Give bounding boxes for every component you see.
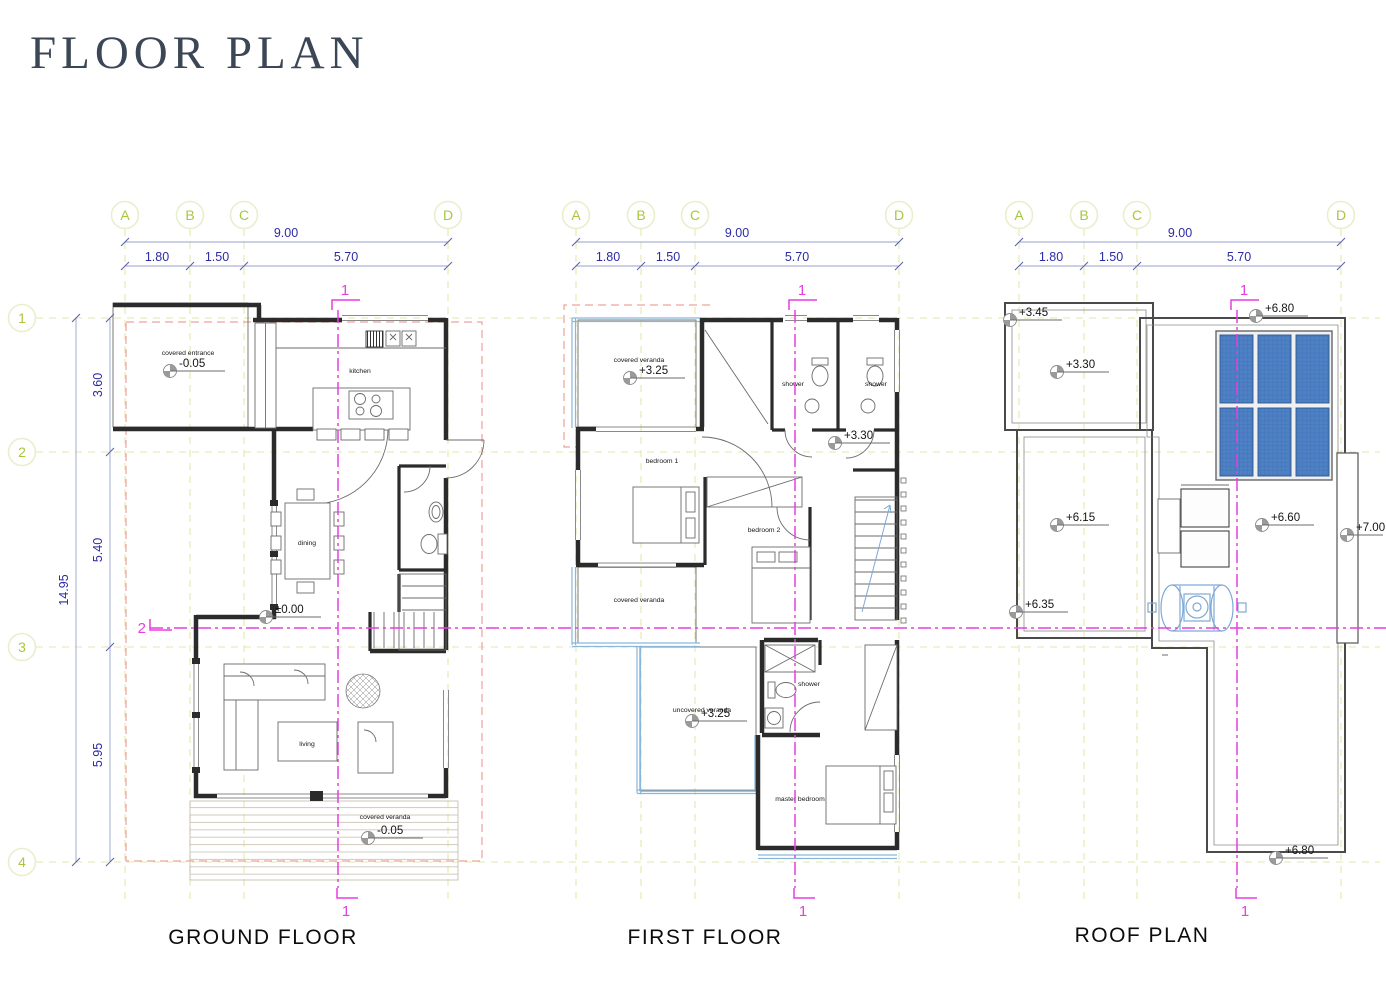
bubble-col-c-roof: C	[1132, 207, 1142, 223]
bubble-col-c-ground: C	[239, 207, 249, 223]
floor-plan-drawing: covered entrance kitchen dining living c…	[0, 0, 1386, 986]
bubble-col-d-first: D	[894, 207, 904, 223]
label-living: living	[299, 741, 315, 748]
level-635: +6.35	[1025, 599, 1054, 611]
dim-seg: 5.95	[91, 743, 105, 767]
bubble-col-a-first: A	[571, 207, 581, 223]
level-680-top: +6.80	[1265, 303, 1294, 315]
first-level-markers: +3.25 +3.30 +3.25	[624, 365, 891, 728]
first-windows	[576, 316, 900, 833]
level-ground-veranda: -0.05	[377, 825, 403, 837]
label-shower-left: shower	[782, 381, 805, 388]
ground-living-furniture	[224, 664, 393, 773]
solar-water-heater	[1148, 585, 1246, 631]
solar-panel-array	[1216, 331, 1332, 480]
level-hall: +3.30	[844, 430, 873, 442]
title-roof-plan: ROOF PLAN	[1075, 924, 1210, 947]
ground-kitchen-fixtures	[255, 323, 446, 440]
bubble-col-a-ground: A	[120, 207, 130, 223]
section-1-bottom-first: 1	[799, 903, 807, 920]
bubble-col-c-first: C	[690, 207, 700, 223]
first-labels: covered veranda shower shower bedroom 1 …	[614, 357, 888, 803]
page-title: FLOOR PLAN	[30, 27, 369, 79]
section-1-top-ground: 1	[341, 282, 349, 299]
dim-seg: 1.80	[596, 250, 620, 264]
section-1-bottom-ground: 1	[342, 903, 350, 920]
dim-seg: 3.60	[91, 373, 105, 397]
bubble-col-b-first: B	[636, 207, 645, 223]
dim-seg: 5.40	[91, 538, 105, 562]
bubble-col-b-roof: B	[1079, 207, 1088, 223]
dim-seg: 5.70	[334, 250, 358, 264]
label-kitchen: kitchen	[349, 368, 371, 375]
first-veranda-top-tiles	[578, 320, 696, 427]
title-ground-floor: GROUND FLOOR	[168, 926, 358, 949]
label-shower-bottom: shower	[798, 681, 821, 688]
ground-wc-fixtures	[421, 502, 447, 554]
dim-total-roof: 9.00	[1168, 226, 1192, 240]
dim-side-total: 14.95	[57, 574, 71, 605]
dim-seg: 5.70	[1227, 250, 1251, 264]
dim-seg: 1.50	[1099, 250, 1123, 264]
title-first-floor: FIRST FLOOR	[628, 926, 783, 949]
label-master-bedroom: master bedroom	[775, 796, 825, 803]
ground-veranda-decking	[190, 801, 458, 880]
roof-parapet-detail	[1337, 453, 1358, 643]
level-veranda-top: +3.25	[639, 365, 668, 377]
label-bedroom2: bedroom 2	[748, 527, 781, 534]
section-1-bottom-roof: 1	[1241, 903, 1249, 920]
label-shower-right: shower	[865, 381, 888, 388]
row-bubbles: 1 2 3 4	[9, 305, 36, 876]
level-660: +6.60	[1271, 512, 1300, 524]
level-main: ±0.00	[275, 604, 304, 616]
column-bubbles: A B C D A B C D A B C D	[112, 202, 1355, 229]
level-uncovered-veranda: +3.25	[701, 708, 730, 720]
dim-total-first: 9.00	[725, 226, 749, 240]
section-1-top-roof: 1	[1240, 282, 1248, 299]
bubble-col-d-roof: D	[1336, 207, 1346, 223]
first-veranda-mid-tiles	[578, 567, 696, 643]
label-covered-entrance: covered entrance	[162, 350, 215, 357]
level-700: +7.00	[1356, 522, 1385, 534]
dim-seg: 1.50	[656, 250, 680, 264]
floor-plan-sheet: covered entrance kitchen dining living c…	[0, 0, 1386, 986]
level-345: +3.45	[1019, 307, 1048, 319]
label-ground-veranda: covered veranda	[360, 814, 411, 821]
dim-seg: 1.80	[145, 250, 169, 264]
label-bedroom1: bedroom 1	[646, 458, 679, 465]
plan-titles: GROUND FLOOR FIRST FLOOR ROOF PLAN	[168, 924, 1209, 949]
bubble-col-a-roof: A	[1014, 207, 1024, 223]
dim-seg: 1.80	[1039, 250, 1063, 264]
bubble-row-2: 2	[18, 444, 26, 460]
dim-seg: 1.50	[205, 250, 229, 264]
level-entrance: -0.05	[179, 358, 205, 370]
dim-total-ground: 9.00	[274, 226, 298, 240]
label-veranda-mid: covered veranda	[614, 597, 665, 604]
label-veranda-top: covered veranda	[614, 357, 665, 364]
plan-roof: +3.45 +3.30 +6.80 +6.15 +6.35 +6.60 +7.0…	[1004, 303, 1386, 865]
level-680-bottom: +6.80	[1285, 845, 1314, 857]
label-dining: dining	[298, 540, 316, 547]
ground-stairs	[374, 574, 446, 650]
bubble-col-b-ground: B	[185, 207, 194, 223]
section-2-label: 2	[138, 620, 146, 637]
first-beds	[633, 487, 896, 824]
bubble-col-d-ground: D	[443, 207, 453, 223]
level-330: +3.30	[1066, 359, 1095, 371]
section-1-top-first: 1	[798, 282, 806, 299]
plan-ground: covered entrance kitchen dining living c…	[113, 303, 484, 880]
dim-seg: 5.70	[785, 250, 809, 264]
bubble-row-4: 4	[18, 854, 26, 870]
bubble-row-3: 3	[18, 639, 26, 655]
bubble-row-1: 1	[18, 310, 26, 326]
roof-overhang-outlines	[126, 305, 710, 861]
ground-interior-walls	[370, 466, 446, 651]
level-615: +6.15	[1066, 512, 1095, 524]
plan-first: covered veranda shower shower bedroom 1 …	[572, 316, 906, 859]
